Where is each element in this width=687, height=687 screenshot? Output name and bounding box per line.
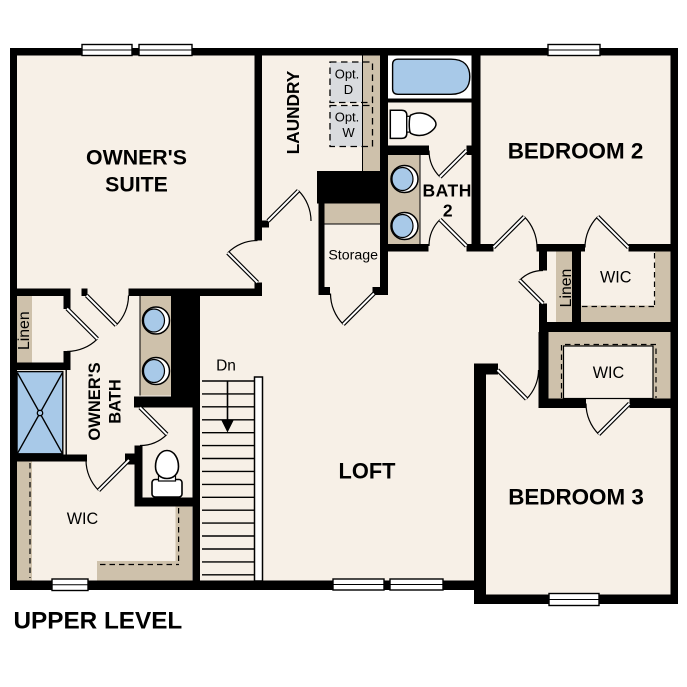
svg-text:Storage: Storage <box>328 248 378 264</box>
svg-text:D: D <box>344 82 353 97</box>
svg-text:WIC: WIC <box>600 269 632 287</box>
svg-text:Linen: Linen <box>16 311 33 350</box>
svg-text:SUITE: SUITE <box>105 173 168 197</box>
svg-text:WIC: WIC <box>593 364 625 382</box>
svg-text:BATH: BATH <box>106 379 124 424</box>
svg-text:W: W <box>342 125 355 140</box>
svg-text:WIC: WIC <box>67 510 99 528</box>
svg-text:OWNER'S: OWNER'S <box>86 146 187 170</box>
svg-text:Linen: Linen <box>558 269 575 308</box>
svg-text:LOFT: LOFT <box>339 459 397 484</box>
svg-text:BEDROOM 2: BEDROOM 2 <box>508 139 644 164</box>
svg-text:Dn: Dn <box>216 358 236 375</box>
svg-text:BATH: BATH <box>423 181 472 201</box>
svg-text:OWNER'S: OWNER'S <box>86 362 104 440</box>
svg-text:LAUNDRY: LAUNDRY <box>283 70 303 154</box>
svg-text:Opt.: Opt. <box>335 67 360 82</box>
svg-text:BEDROOM 3: BEDROOM 3 <box>508 485 644 510</box>
svg-text:UPPER LEVEL: UPPER LEVEL <box>14 608 183 635</box>
svg-text:Opt.: Opt. <box>335 110 360 125</box>
svg-text:2: 2 <box>443 200 453 220</box>
